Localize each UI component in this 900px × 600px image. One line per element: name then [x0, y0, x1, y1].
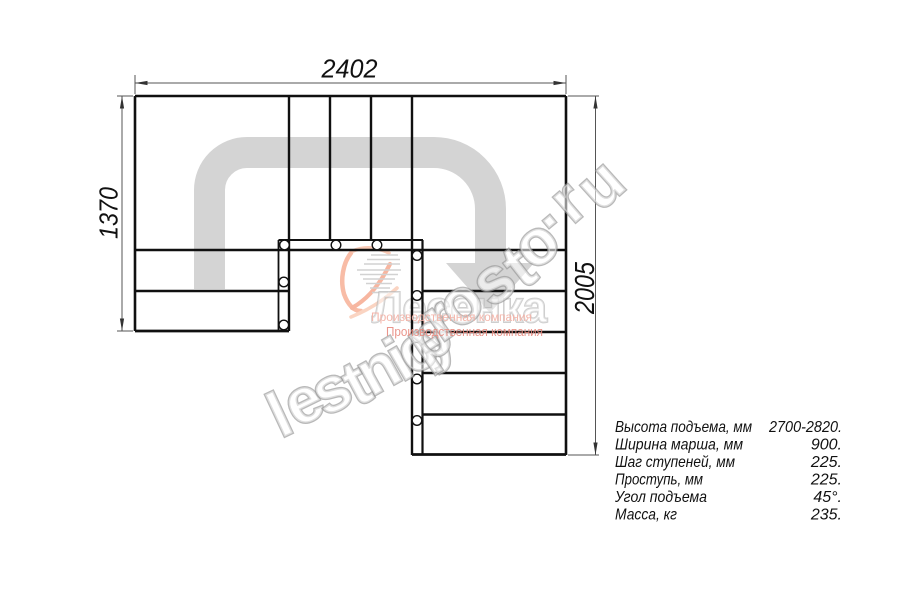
svg-text:2005: 2005 [569, 262, 600, 315]
svg-text:235.: 235. [810, 507, 842, 524]
svg-text:225.: 225. [810, 472, 842, 489]
svg-text:Ширина марша, мм: Ширина марша, мм [615, 437, 743, 454]
svg-text:Проступь, мм: Проступь, мм [615, 472, 703, 489]
svg-text:Угол подъема: Угол подъема [614, 489, 707, 506]
svg-text:2402: 2402 [321, 54, 378, 84]
svg-text:1370: 1370 [94, 187, 124, 239]
svg-text:900.: 900. [811, 437, 842, 454]
svg-text:2700-2820.: 2700-2820. [768, 419, 842, 436]
svg-text:225.: 225. [810, 454, 842, 471]
svg-text:Шаг ступеней, мм: Шаг ступеней, мм [615, 454, 735, 471]
svg-text:Масса, кг: Масса, кг [615, 507, 677, 524]
svg-text:45°.: 45°. [813, 489, 842, 506]
svg-text:Высота подъема, мм: Высота подъема, мм [615, 419, 752, 436]
svg-text:Производственная компания: Производственная компания [386, 325, 543, 339]
svg-text:Производственная компания: Производственная компания [371, 312, 532, 324]
